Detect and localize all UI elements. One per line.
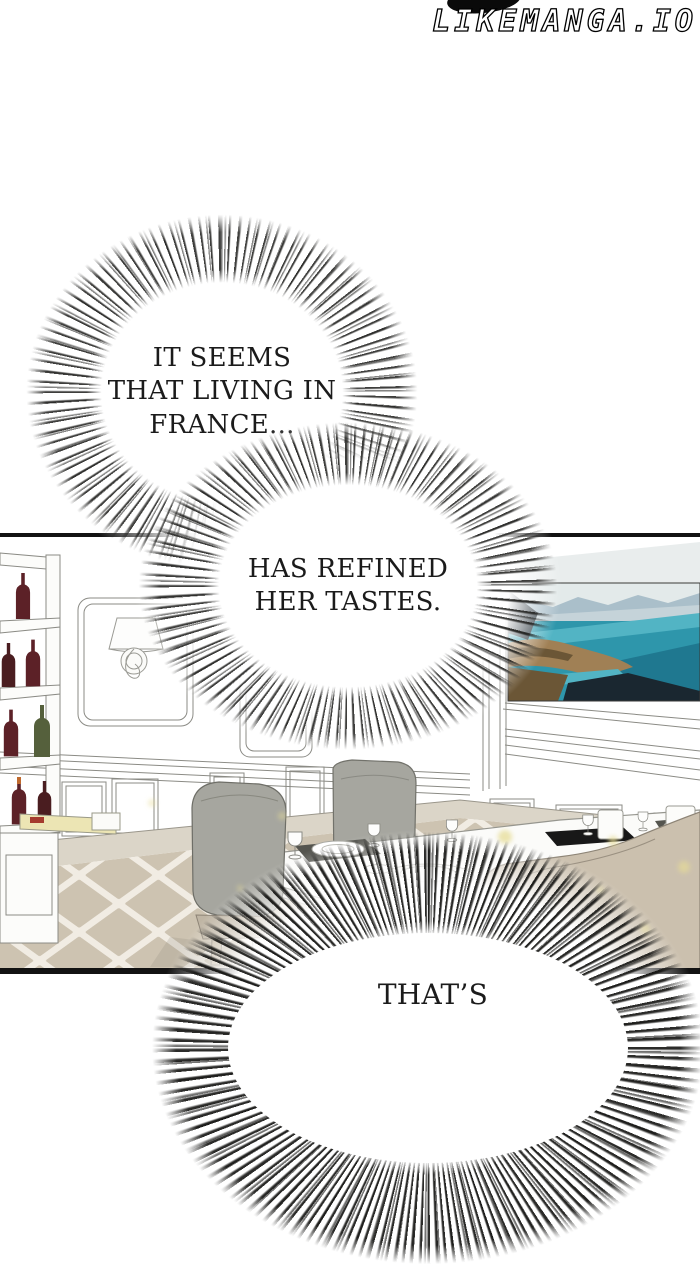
burst-rays [7, 197, 437, 587]
landscape-painting [508, 583, 700, 701]
chair-leg [211, 939, 222, 965]
bubble-halo [7, 197, 437, 587]
speech-bubble-1: IT SEEMS THAT LIVING IN FRANCE... [7, 197, 437, 587]
napkin-box [598, 810, 623, 839]
panel-border-top [0, 533, 700, 537]
watermark-text: LIKEMANGA.IO [432, 4, 697, 39]
dining-room-illustration [0, 533, 700, 974]
bottle-cap [17, 777, 21, 784]
cabinet [0, 833, 58, 943]
chair-seat [196, 915, 292, 939]
bubble-core: IT SEEMS THAT LIVING IN FRANCE... [104, 284, 340, 500]
bowl [365, 865, 391, 874]
bubble-text: IT SEEMS THAT LIVING IN FRANCE... [108, 342, 337, 442]
scene-panel [0, 533, 700, 974]
bubble-text: THAT’S [378, 977, 488, 1013]
manga-page: IT SEEMS THAT LIVING IN FRANCE... HAS RE… [0, 0, 700, 1000]
chair-leg [264, 940, 274, 965]
chair-left [192, 782, 292, 965]
plate [312, 841, 364, 857]
panel-border-bottom [0, 968, 700, 974]
site-watermark: LIKEMANGA.IO [400, 0, 700, 60]
